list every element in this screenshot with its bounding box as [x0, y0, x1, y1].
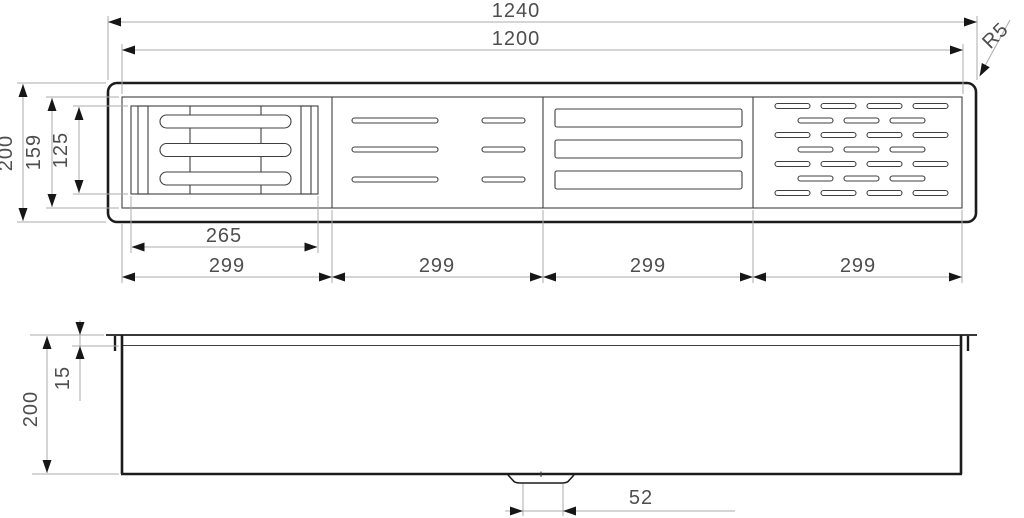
dim-section-1: 299 [209, 255, 245, 277]
section-rack [131, 106, 318, 194]
dim-rack-width: 125 [50, 132, 72, 168]
section-drain-grid [775, 104, 948, 196]
technical-drawing-page: 1240 1200 R5 200 159 125 265 299 299 299… [0, 0, 1024, 518]
dim-inner-length: 1200 [492, 28, 541, 50]
dim-rack-length: 265 [206, 225, 242, 247]
dim-drain-width: 52 [629, 487, 653, 509]
dim-overall-length: 1240 [492, 0, 541, 22]
dim-section-3: 299 [630, 255, 666, 277]
top-view: 1240 1200 R5 200 159 125 265 299 299 299… [0, 0, 1013, 283]
dim-inner-width: 159 [23, 134, 45, 170]
dim-section-2: 299 [419, 255, 455, 277]
dim-overall-height: 200 [20, 391, 42, 427]
side-view: 15 200 52 [20, 320, 977, 516]
technical-drawing: 1240 1200 R5 200 159 125 265 299 299 299… [0, 0, 1024, 518]
dim-section-4: 299 [840, 255, 876, 277]
section-openings [555, 109, 742, 189]
dim-overall-width: 200 [0, 135, 17, 171]
section-slots-mixed [352, 118, 525, 182]
dim-rim-height: 15 [52, 366, 74, 390]
